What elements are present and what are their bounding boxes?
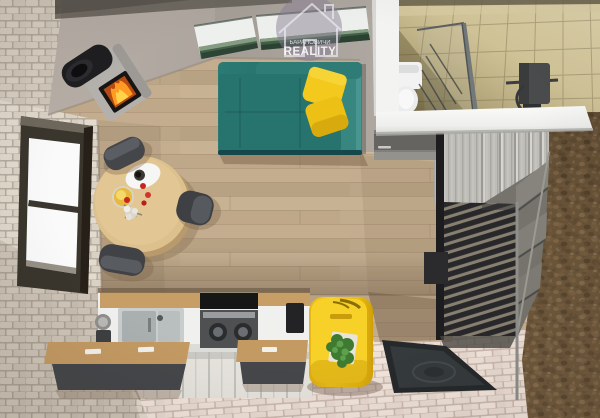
svg-text:REALITY: REALITY	[284, 46, 337, 58]
